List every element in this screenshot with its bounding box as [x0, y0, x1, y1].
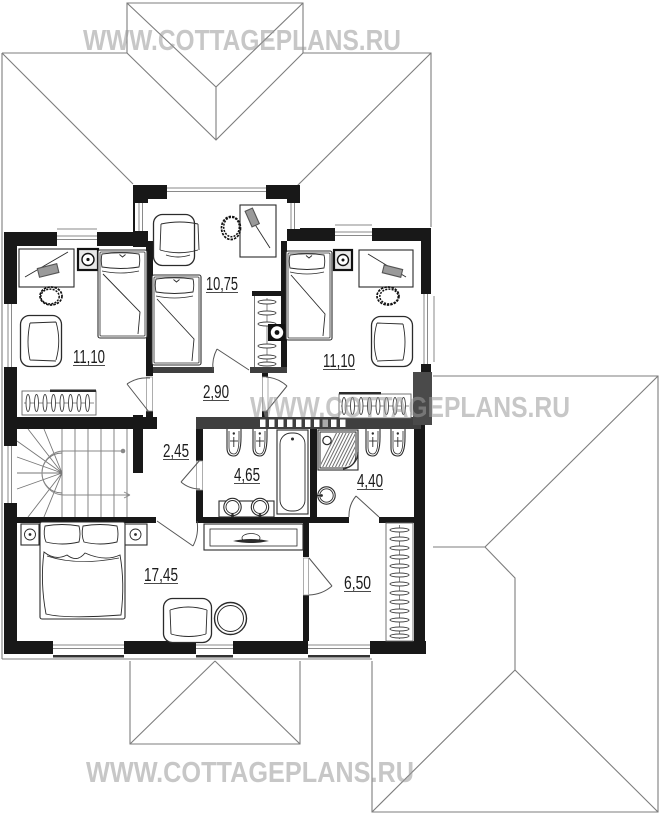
- svg-text:11,10: 11,10: [73, 347, 105, 367]
- svg-text:11,10: 11,10: [323, 351, 355, 371]
- svg-text:WWW.COTTAGEPLANS.RU: WWW.COTTAGEPLANS.RU: [250, 392, 570, 424]
- svg-text:17,45: 17,45: [144, 565, 178, 585]
- svg-text:4,40: 4,40: [357, 471, 383, 491]
- svg-text:2,45: 2,45: [163, 441, 189, 461]
- svg-text:10,75: 10,75: [206, 274, 238, 294]
- svg-text:WWW.COTTAGEPLANS.RU: WWW.COTTAGEPLANS.RU: [86, 757, 414, 789]
- svg-text:WWW.COTTAGEPLANS.RU: WWW.COTTAGEPLANS.RU: [83, 25, 401, 57]
- svg-text:6,50: 6,50: [344, 573, 371, 593]
- svg-text:4,65: 4,65: [234, 465, 260, 485]
- svg-text:2,90: 2,90: [203, 382, 229, 402]
